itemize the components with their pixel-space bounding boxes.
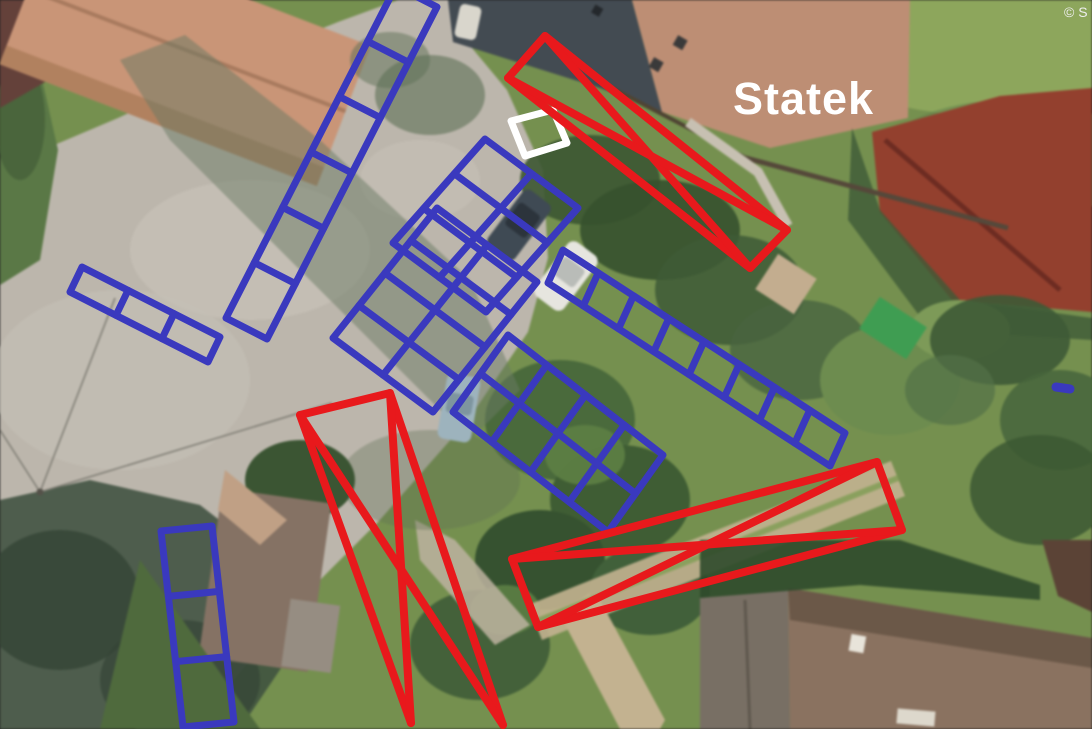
blue-dash-right-edge[interactable]	[1056, 387, 1070, 389]
chimney-white	[849, 634, 867, 653]
map-canvas: Statek © S	[0, 0, 1092, 729]
map-label: Statek	[733, 73, 874, 124]
copyright-text: © S	[1064, 4, 1088, 20]
utility-pole	[37, 489, 44, 496]
